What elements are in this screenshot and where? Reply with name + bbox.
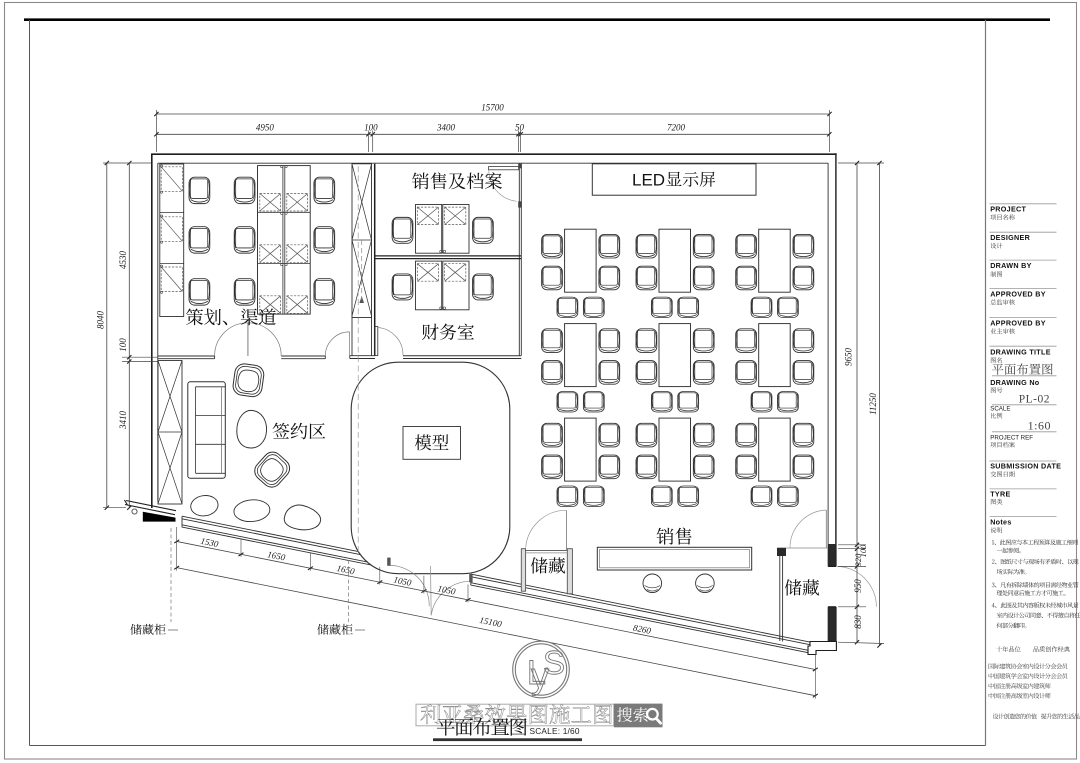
- svg-text:PROJECT REF: PROJECT REF: [990, 435, 1033, 442]
- svg-text:SCALE: 1/60: SCALE: 1/60: [530, 726, 580, 736]
- svg-text:SUBMISSION DATE: SUBMISSION DATE: [990, 462, 1061, 471]
- svg-text:4950: 4950: [256, 122, 275, 132]
- svg-text:3400: 3400: [436, 122, 456, 132]
- svg-text:SCALE: SCALE: [990, 406, 1010, 413]
- svg-text:1:60: 1:60: [1028, 419, 1051, 433]
- svg-text:8040: 8040: [96, 311, 106, 330]
- svg-text:DRAWING TITLE: DRAWING TITLE: [990, 348, 1051, 357]
- svg-text:LED: LED: [632, 171, 665, 190]
- svg-text:DRAWN BY: DRAWN BY: [990, 261, 1032, 270]
- svg-text:15700: 15700: [481, 102, 504, 112]
- svg-text:3410: 3410: [118, 411, 128, 431]
- svg-text:DESIGNER: DESIGNER: [990, 233, 1030, 242]
- svg-text:PROJECT: PROJECT: [990, 205, 1026, 214]
- svg-text:4530: 4530: [118, 251, 128, 270]
- svg-text:320: 320: [853, 553, 863, 568]
- svg-text:TYRE: TYRE: [990, 490, 1010, 499]
- svg-text:100: 100: [118, 338, 128, 352]
- svg-text:9650: 9650: [844, 348, 854, 367]
- svg-text:DRAWING No: DRAWING No: [990, 378, 1040, 387]
- svg-text:950: 950: [853, 579, 863, 593]
- svg-text:7200: 7200: [667, 122, 686, 132]
- svg-text:11250: 11250: [868, 393, 878, 415]
- svg-text:APPROVED BY: APPROVED BY: [990, 290, 1046, 299]
- svg-text:830: 830: [853, 615, 863, 629]
- svg-text:Notes: Notes: [990, 518, 1011, 527]
- svg-text:50: 50: [515, 122, 525, 132]
- svg-text:PL-02: PL-02: [1019, 394, 1050, 406]
- svg-text:APPROVED BY: APPROVED BY: [990, 319, 1046, 328]
- svg-text:100: 100: [364, 122, 378, 132]
- svg-text:S: S: [543, 644, 565, 681]
